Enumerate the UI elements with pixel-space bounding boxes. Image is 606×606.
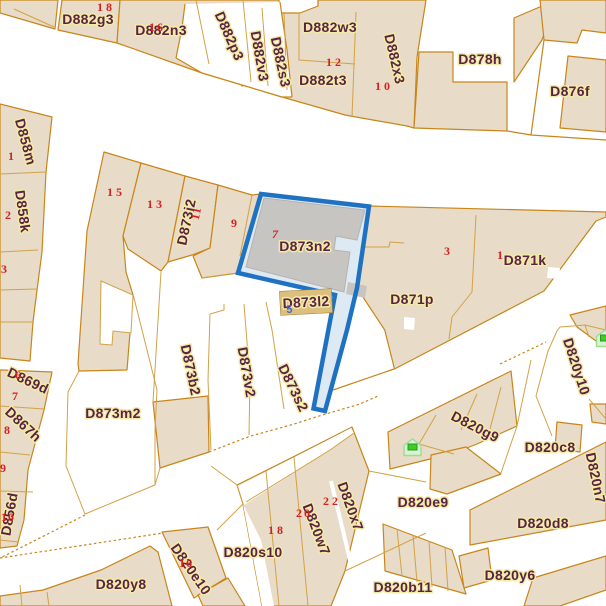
svg-text:11: 11 (188, 205, 204, 221)
svg-text:D820y6: D820y6 (485, 567, 536, 583)
svg-text:D876f: D876f (550, 83, 590, 99)
svg-text:9: 9 (0, 461, 6, 475)
svg-text:8: 8 (4, 423, 10, 437)
svg-text:18: 18 (97, 0, 115, 14)
svg-text:D820d8: D820d8 (517, 515, 569, 531)
svg-text:5: 5 (286, 304, 293, 316)
svg-text:D871p: D871p (390, 291, 434, 307)
svg-text:12: 12 (326, 55, 344, 69)
svg-text:1: 1 (497, 248, 503, 262)
svg-text:16: 16 (179, 556, 193, 570)
svg-text:D871k: D871k (504, 252, 547, 268)
svg-text:16: 16 (149, 20, 165, 34)
svg-text:D882w3: D882w3 (303, 19, 357, 35)
svg-text:13: 13 (147, 197, 165, 211)
svg-text:D873n2: D873n2 (279, 238, 331, 254)
svg-text:9: 9 (231, 216, 237, 230)
svg-text:D820s10: D820s10 (224, 544, 283, 560)
svg-text:3: 3 (444, 244, 450, 258)
svg-text:15: 15 (107, 185, 125, 199)
svg-text:10: 10 (1, 510, 15, 524)
svg-text:22: 22 (323, 494, 341, 508)
svg-text:7: 7 (272, 227, 279, 241)
svg-text:D820e9: D820e9 (398, 494, 449, 510)
svg-text:D820c8: D820c8 (525, 439, 576, 455)
svg-text:2: 2 (5, 208, 11, 222)
svg-text:D878h: D878h (458, 51, 502, 67)
svg-text:20: 20 (296, 506, 312, 520)
svg-text:D882t3: D882t3 (299, 72, 347, 88)
svg-text:18: 18 (268, 523, 286, 537)
svg-text:1: 1 (8, 149, 14, 163)
svg-text:10: 10 (375, 79, 393, 93)
svg-text:D820y8: D820y8 (96, 576, 147, 592)
svg-text:7: 7 (12, 389, 18, 403)
svg-text:6: 6 (15, 368, 21, 382)
svg-text:3: 3 (1, 262, 7, 276)
svg-text:D873m2: D873m2 (85, 405, 141, 421)
svg-text:D820b11: D820b11 (374, 579, 433, 595)
